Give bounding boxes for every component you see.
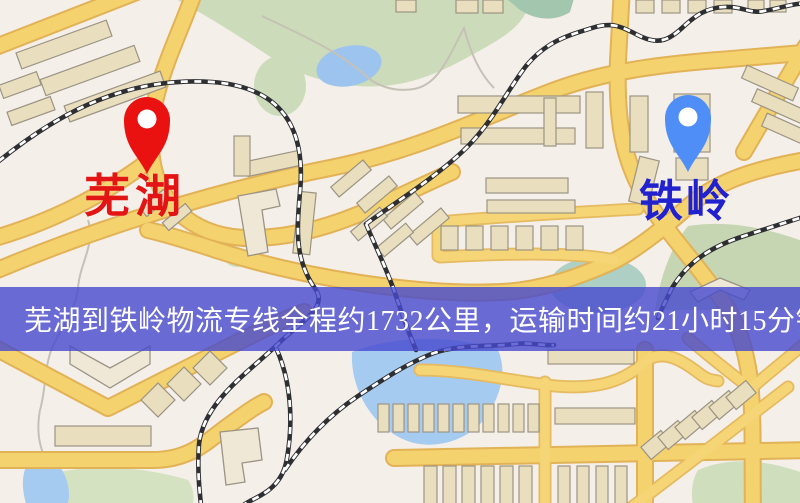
origin-pin-hole <box>138 110 157 129</box>
destination-label: 铁岭 <box>639 180 733 224</box>
route-info-banner: 芜湖到铁岭物流专线全程约1732公里，运输时间约21小时15分钟. <box>0 287 800 351</box>
map-canvas[interactable]: 芜湖 铁岭 芜湖到铁岭物流专线全程约1732公里，运输时间约21小时15分钟. <box>0 0 800 503</box>
route-info-text: 芜湖到铁岭物流专线全程约1732公里，运输时间约21小时15分钟. <box>24 299 800 339</box>
origin-label: 芜湖 <box>84 174 186 220</box>
destination-pin-hole <box>679 108 698 127</box>
